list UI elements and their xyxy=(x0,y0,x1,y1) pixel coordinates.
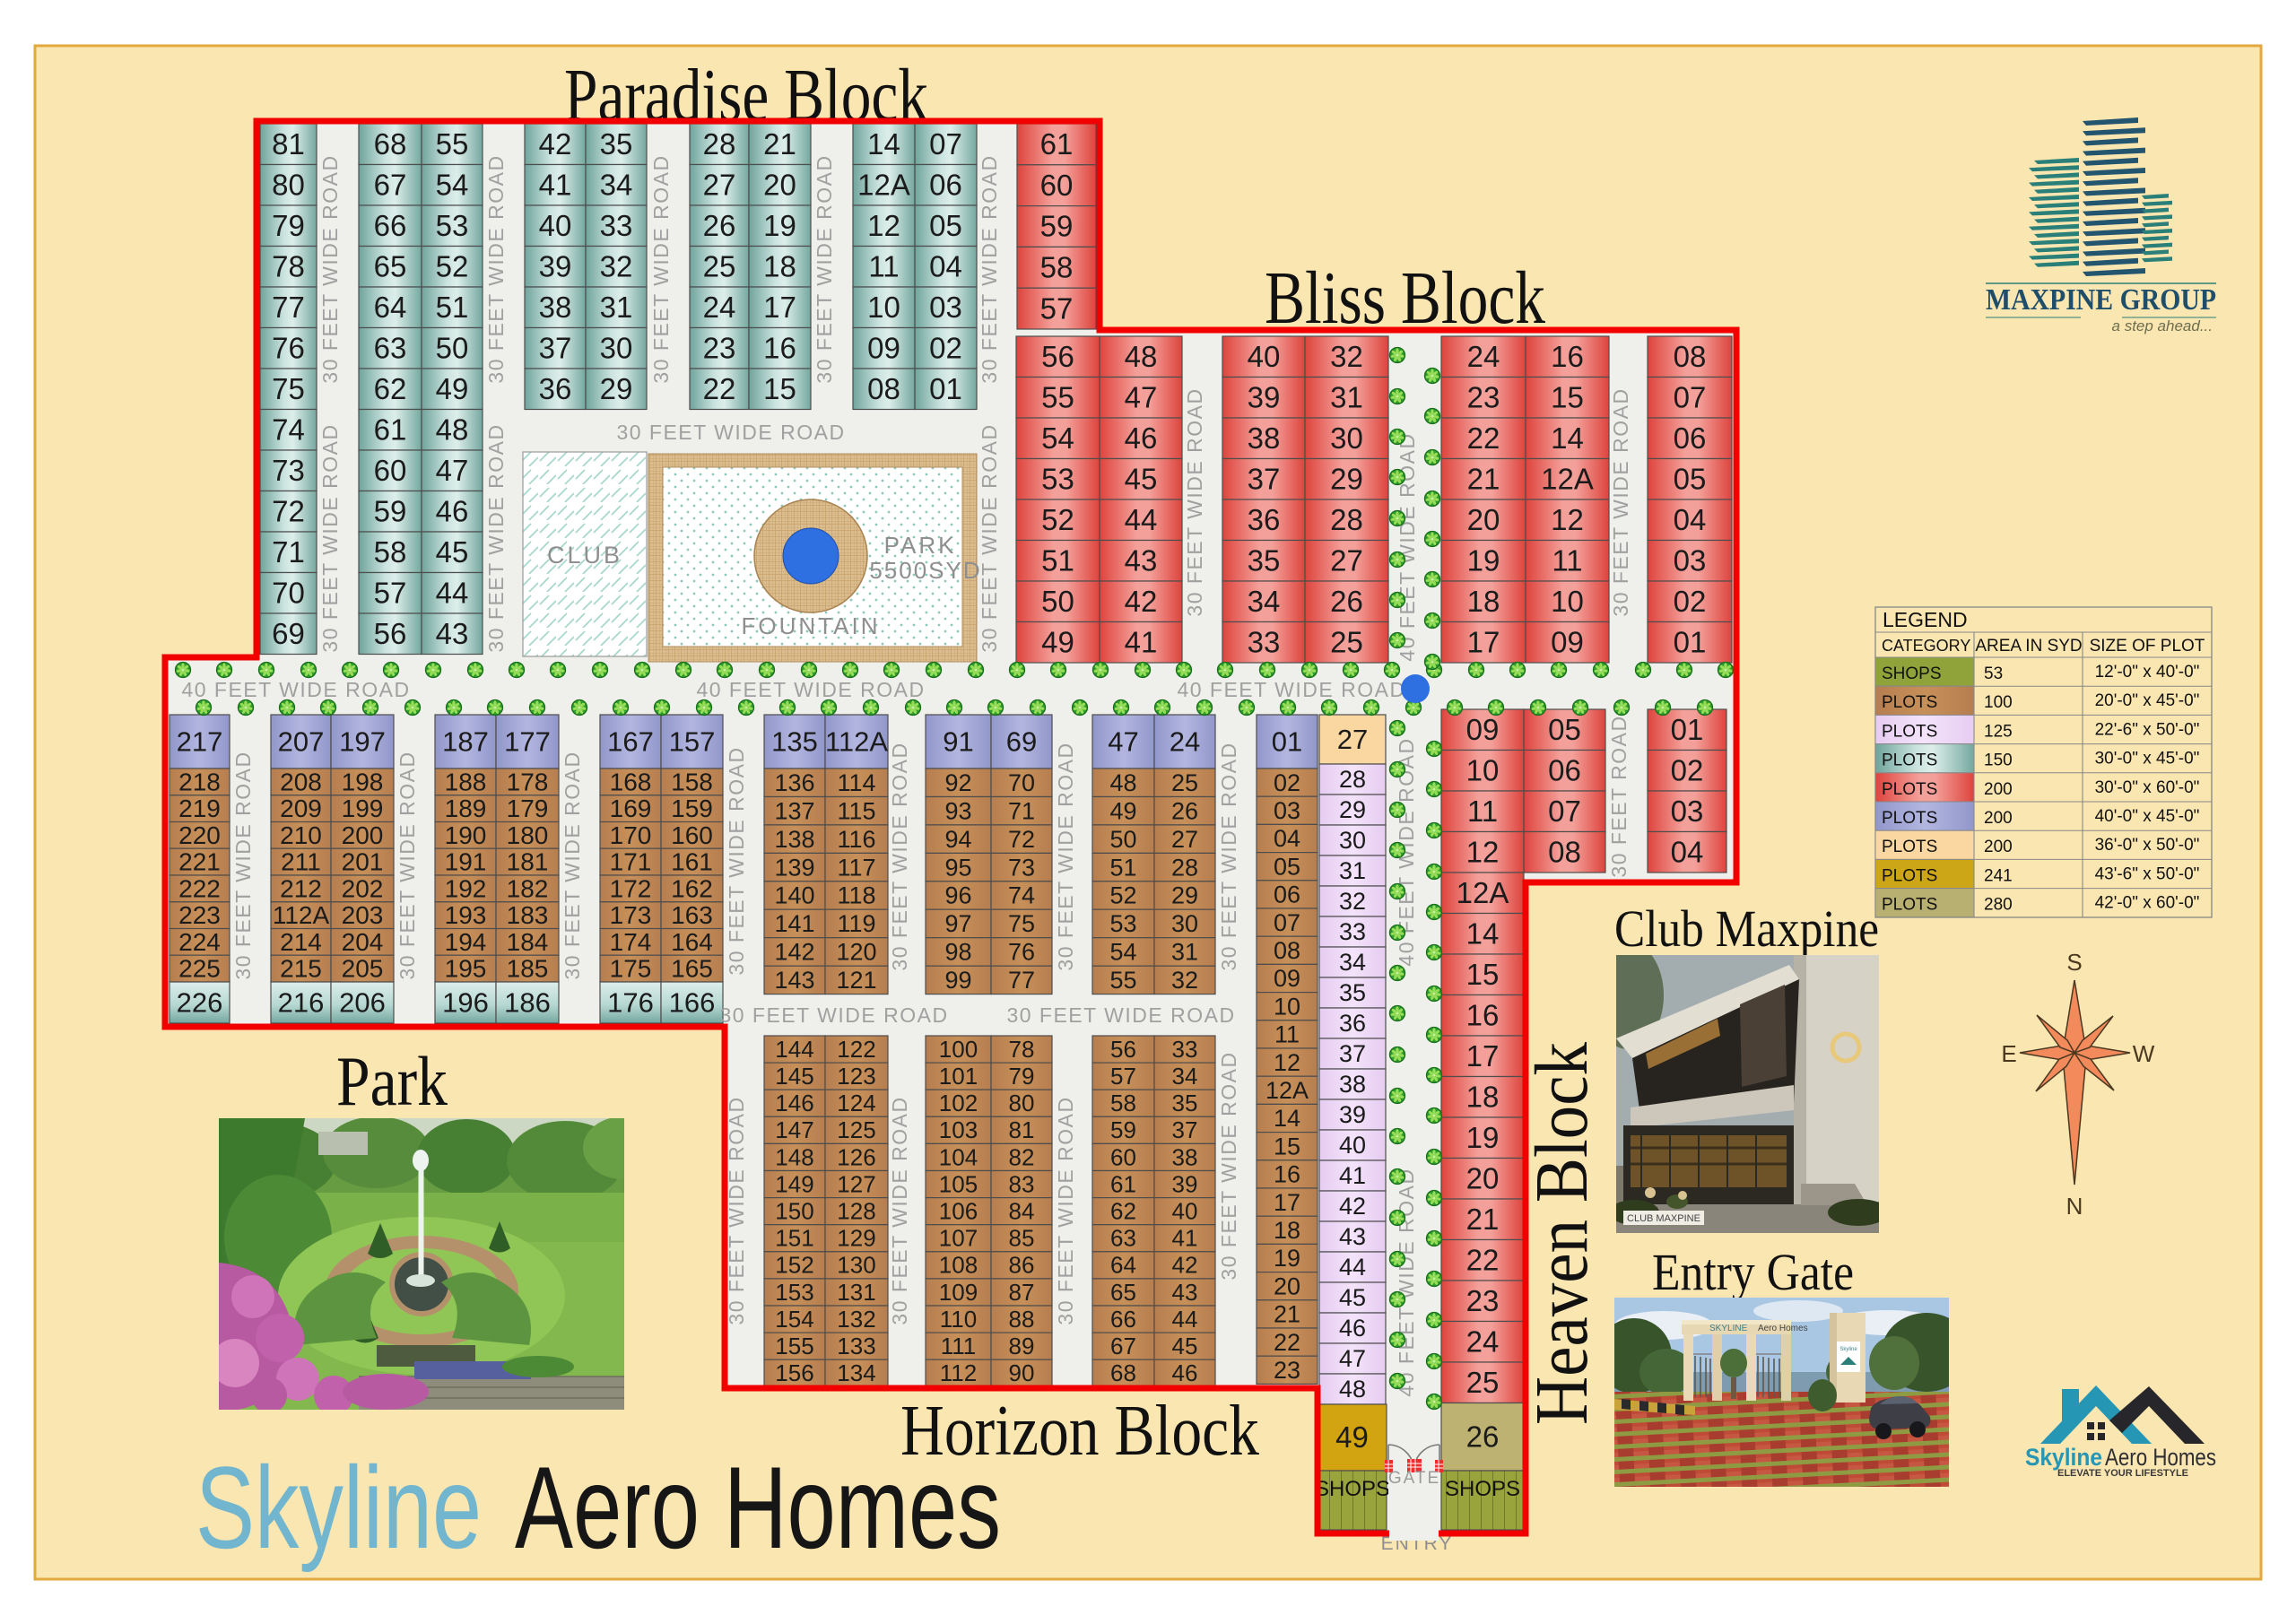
svg-text:20: 20 xyxy=(1466,1162,1500,1195)
svg-text:12: 12 xyxy=(867,209,900,242)
svg-text:124: 124 xyxy=(837,1090,875,1116)
svg-text:48: 48 xyxy=(1339,1376,1366,1403)
svg-text:185: 185 xyxy=(507,955,549,983)
svg-text:44: 44 xyxy=(1172,1306,1198,1333)
svg-text:34: 34 xyxy=(1339,949,1366,976)
svg-text:103: 103 xyxy=(939,1116,978,1143)
svg-text:01: 01 xyxy=(1674,626,1707,659)
svg-text:14: 14 xyxy=(1551,421,1584,455)
svg-text:46: 46 xyxy=(1125,421,1158,455)
svg-text:23: 23 xyxy=(1467,381,1500,414)
svg-text:51: 51 xyxy=(1041,544,1074,578)
svg-text:195: 195 xyxy=(445,955,487,983)
svg-text:60: 60 xyxy=(1040,169,1074,202)
svg-text:96: 96 xyxy=(944,882,971,909)
svg-text:153: 153 xyxy=(775,1279,813,1306)
svg-text:121: 121 xyxy=(836,967,876,994)
svg-text:59: 59 xyxy=(1110,1116,1136,1143)
svg-text:SHOPS: SHOPS xyxy=(1315,1477,1390,1501)
svg-text:05: 05 xyxy=(1548,713,1581,746)
svg-text:12: 12 xyxy=(1466,836,1500,869)
svg-text:66: 66 xyxy=(374,209,407,242)
svg-text:28: 28 xyxy=(1330,503,1363,536)
svg-text:38: 38 xyxy=(1339,1071,1366,1098)
svg-text:30 FEET WIDE ROAD: 30 FEET WIDE ROAD xyxy=(649,154,673,383)
svg-text:40: 40 xyxy=(1172,1198,1198,1225)
svg-text:58: 58 xyxy=(374,535,407,569)
svg-text:200: 200 xyxy=(342,821,384,849)
svg-text:108: 108 xyxy=(939,1252,978,1279)
svg-text:59: 59 xyxy=(374,495,407,528)
svg-text:Entry Gate: Entry Gate xyxy=(1652,1243,1854,1301)
svg-text:40 FEET WIDE ROAD: 40 FEET WIDE ROAD xyxy=(1177,678,1405,701)
svg-text:34: 34 xyxy=(600,169,633,202)
svg-text:83: 83 xyxy=(1009,1170,1035,1197)
svg-text:80: 80 xyxy=(1009,1090,1035,1116)
svg-text:54: 54 xyxy=(1109,939,1136,966)
svg-text:181: 181 xyxy=(507,848,549,876)
svg-text:30 FEET ROAD: 30 FEET ROAD xyxy=(1607,715,1631,877)
svg-text:143: 143 xyxy=(774,967,814,994)
svg-text:35: 35 xyxy=(1339,979,1366,1006)
svg-text:201: 201 xyxy=(342,848,384,876)
svg-text:58: 58 xyxy=(1040,251,1074,284)
svg-text:73: 73 xyxy=(1008,854,1035,881)
svg-text:49: 49 xyxy=(1109,797,1136,824)
svg-text:57: 57 xyxy=(1040,291,1074,325)
svg-text:29: 29 xyxy=(600,372,633,405)
svg-text:44: 44 xyxy=(1339,1254,1366,1281)
svg-text:150: 150 xyxy=(775,1198,813,1225)
svg-text:30 FEET WIDE ROAD: 30 FEET WIDE ROAD xyxy=(888,1096,911,1324)
svg-text:30 FEET WIDE ROAD: 30 FEET WIDE ROAD xyxy=(318,423,342,652)
svg-text:40: 40 xyxy=(1248,340,1281,373)
svg-text:CLUB MAXPINE: CLUB MAXPINE xyxy=(1627,1213,1700,1224)
svg-text:117: 117 xyxy=(837,854,875,881)
svg-text:76: 76 xyxy=(1008,939,1035,966)
svg-text:39: 39 xyxy=(1339,1101,1366,1128)
svg-text:47: 47 xyxy=(1108,726,1138,758)
svg-text:30 FEET WIDE ROAD: 30 FEET WIDE ROAD xyxy=(725,1096,748,1324)
svg-text:14: 14 xyxy=(1274,1105,1300,1132)
svg-text:30 FEET WIDE ROAD: 30 FEET WIDE ROAD xyxy=(725,746,748,975)
svg-text:127: 127 xyxy=(837,1170,875,1197)
svg-text:18: 18 xyxy=(1467,585,1500,618)
svg-text:33: 33 xyxy=(600,209,633,242)
svg-text:216: 216 xyxy=(278,987,325,1019)
svg-text:26: 26 xyxy=(1171,797,1198,824)
svg-text:03: 03 xyxy=(929,291,962,324)
svg-text:79: 79 xyxy=(272,209,305,242)
svg-text:27: 27 xyxy=(1171,826,1198,853)
svg-text:09: 09 xyxy=(1466,713,1500,746)
svg-text:203: 203 xyxy=(342,901,384,929)
svg-text:221: 221 xyxy=(178,848,221,876)
svg-text:22: 22 xyxy=(1466,1244,1500,1277)
svg-text:125: 125 xyxy=(837,1116,875,1143)
svg-text:100: 100 xyxy=(939,1036,978,1063)
svg-text:56: 56 xyxy=(1110,1036,1136,1063)
svg-text:SIZE OF PLOT: SIZE OF PLOT xyxy=(2090,637,2205,656)
svg-text:105: 105 xyxy=(939,1170,978,1197)
svg-text:14: 14 xyxy=(1466,917,1500,951)
svg-text:CATEGORY: CATEGORY xyxy=(1882,637,1970,655)
svg-text:114: 114 xyxy=(837,769,875,796)
svg-text:175: 175 xyxy=(610,955,652,983)
svg-text:16: 16 xyxy=(1466,999,1500,1032)
svg-text:04: 04 xyxy=(1274,825,1300,852)
svg-text:109: 109 xyxy=(939,1279,978,1306)
svg-text:40 FEET WIDE ROAD: 40 FEET WIDE ROAD xyxy=(1395,1168,1418,1396)
svg-text:PLOTS: PLOTS xyxy=(1882,722,1937,741)
svg-text:29: 29 xyxy=(1171,882,1198,909)
svg-text:37: 37 xyxy=(539,332,572,365)
svg-text:06: 06 xyxy=(929,169,962,202)
svg-text:03: 03 xyxy=(1274,797,1300,824)
svg-text:22: 22 xyxy=(703,372,736,405)
svg-text:123: 123 xyxy=(837,1063,875,1090)
svg-text:189: 189 xyxy=(445,795,487,822)
svg-text:177: 177 xyxy=(504,726,551,758)
svg-text:220: 220 xyxy=(178,821,221,849)
svg-text:30: 30 xyxy=(1171,910,1198,937)
svg-text:02: 02 xyxy=(929,332,962,365)
svg-text:82: 82 xyxy=(1009,1143,1035,1170)
svg-text:40: 40 xyxy=(1339,1132,1366,1159)
svg-text:30 FEET WIDE ROAD: 30 FEET WIDE ROAD xyxy=(888,742,911,970)
svg-text:192: 192 xyxy=(445,874,487,902)
svg-text:81: 81 xyxy=(1009,1116,1035,1143)
svg-text:11: 11 xyxy=(1274,1021,1300,1048)
svg-text:35: 35 xyxy=(1172,1090,1198,1116)
svg-text:26: 26 xyxy=(1330,585,1363,618)
svg-text:PLOTS: PLOTS xyxy=(1882,780,1937,799)
svg-text:52: 52 xyxy=(436,250,469,283)
svg-text:142: 142 xyxy=(774,939,814,966)
svg-text:19: 19 xyxy=(763,209,796,242)
svg-text:Park: Park xyxy=(336,1042,448,1120)
svg-text:30 FEET WIDE ROAD: 30 FEET WIDE ROAD xyxy=(719,1003,948,1027)
svg-text:222: 222 xyxy=(178,874,221,902)
svg-text:205: 205 xyxy=(342,955,384,983)
svg-text:39: 39 xyxy=(539,250,572,283)
svg-text:27: 27 xyxy=(703,169,736,202)
svg-text:88: 88 xyxy=(1009,1306,1035,1333)
svg-text:31: 31 xyxy=(1339,857,1366,884)
svg-text:122: 122 xyxy=(837,1036,875,1063)
svg-text:31: 31 xyxy=(1330,381,1363,414)
svg-text:139: 139 xyxy=(774,854,814,881)
svg-text:17: 17 xyxy=(763,291,796,324)
svg-text:45: 45 xyxy=(436,535,469,569)
svg-text:92: 92 xyxy=(944,769,971,796)
svg-text:99: 99 xyxy=(944,967,971,994)
svg-text:165: 165 xyxy=(671,955,713,983)
svg-text:Aero Homes: Aero Homes xyxy=(2105,1444,2216,1471)
svg-text:07: 07 xyxy=(929,127,962,161)
svg-text:64: 64 xyxy=(374,291,407,324)
svg-text:15: 15 xyxy=(1274,1133,1300,1159)
svg-text:40 FEET WIDE ROAD: 40 FEET WIDE ROAD xyxy=(696,678,925,701)
svg-text:Aero Homes: Aero Homes xyxy=(515,1442,1001,1573)
svg-text:55: 55 xyxy=(1109,967,1136,994)
svg-text:30 FEET WIDE ROAD: 30 FEET WIDE ROAD xyxy=(1609,387,1632,616)
svg-text:217: 217 xyxy=(177,726,223,758)
svg-text:90: 90 xyxy=(1009,1359,1035,1386)
svg-text:CLUB: CLUB xyxy=(547,542,622,569)
svg-text:50: 50 xyxy=(1109,826,1136,853)
svg-text:176: 176 xyxy=(607,987,654,1019)
svg-text:17: 17 xyxy=(1467,626,1500,659)
svg-text:28: 28 xyxy=(1171,854,1198,881)
svg-text:68: 68 xyxy=(374,127,407,161)
svg-text:129: 129 xyxy=(837,1225,875,1252)
svg-text:280: 280 xyxy=(1984,896,2013,915)
svg-text:73: 73 xyxy=(272,454,305,487)
svg-text:PLOTS: PLOTS xyxy=(1882,751,1937,770)
svg-text:02: 02 xyxy=(1274,769,1300,796)
svg-text:37: 37 xyxy=(1339,1040,1366,1067)
svg-text:39: 39 xyxy=(1248,381,1281,414)
svg-text:146: 146 xyxy=(775,1090,813,1116)
svg-text:21: 21 xyxy=(1274,1301,1300,1328)
svg-text:126: 126 xyxy=(837,1143,875,1170)
svg-text:67: 67 xyxy=(374,169,407,202)
svg-text:30 FEET WIDE ROAD: 30 FEET WIDE ROAD xyxy=(1183,387,1206,616)
svg-text:49: 49 xyxy=(1335,1420,1369,1454)
svg-text:03: 03 xyxy=(1674,544,1707,578)
svg-text:28: 28 xyxy=(703,127,736,161)
svg-text:14: 14 xyxy=(867,127,900,161)
svg-text:164: 164 xyxy=(671,928,713,956)
svg-text:33: 33 xyxy=(1172,1036,1198,1063)
svg-text:30: 30 xyxy=(1339,827,1366,854)
svg-text:61: 61 xyxy=(1040,127,1074,161)
svg-text:07: 07 xyxy=(1548,795,1581,828)
svg-text:40'-0" x 45'-0": 40'-0" x 45'-0" xyxy=(2095,807,2200,826)
svg-text:05: 05 xyxy=(1674,463,1707,496)
svg-text:198: 198 xyxy=(342,768,384,795)
svg-text:24: 24 xyxy=(1466,1325,1500,1359)
svg-text:214: 214 xyxy=(280,928,322,956)
svg-text:66: 66 xyxy=(1110,1306,1136,1333)
svg-text:39: 39 xyxy=(1172,1170,1198,1197)
svg-text:104: 104 xyxy=(939,1143,978,1170)
svg-text:12A: 12A xyxy=(1265,1077,1309,1104)
svg-text:21: 21 xyxy=(763,127,796,161)
svg-text:172: 172 xyxy=(610,874,652,902)
svg-text:Skyline: Skyline xyxy=(1839,1347,1857,1352)
svg-text:78: 78 xyxy=(1009,1036,1035,1063)
svg-text:149: 149 xyxy=(775,1170,813,1197)
svg-text:53: 53 xyxy=(436,209,469,242)
svg-text:44: 44 xyxy=(436,577,469,610)
svg-text:219: 219 xyxy=(178,795,221,822)
svg-text:226: 226 xyxy=(177,987,223,1019)
svg-text:53: 53 xyxy=(1984,664,2003,683)
svg-text:183: 183 xyxy=(507,901,549,929)
svg-text:65: 65 xyxy=(374,250,407,283)
svg-text:94: 94 xyxy=(944,826,971,853)
svg-text:Club Maxpine: Club Maxpine xyxy=(1614,899,1879,958)
svg-text:43: 43 xyxy=(1172,1279,1198,1306)
svg-text:16: 16 xyxy=(763,332,796,365)
svg-text:W: W xyxy=(2133,1040,2155,1067)
svg-text:160: 160 xyxy=(671,821,713,849)
svg-text:167: 167 xyxy=(607,726,654,758)
svg-text:30 FEET WIDE ROAD: 30 FEET WIDE ROAD xyxy=(978,423,1001,652)
svg-text:PLOTS: PLOTS xyxy=(1882,693,1937,712)
svg-text:24: 24 xyxy=(1467,340,1500,373)
svg-text:100: 100 xyxy=(1984,693,2013,712)
svg-text:12A: 12A xyxy=(1457,876,1509,909)
svg-text:157: 157 xyxy=(669,726,716,758)
svg-text:210: 210 xyxy=(280,821,322,849)
svg-text:170: 170 xyxy=(610,821,652,849)
svg-text:12: 12 xyxy=(1551,503,1584,536)
svg-text:65: 65 xyxy=(1110,1279,1136,1306)
svg-text:11: 11 xyxy=(1467,795,1498,828)
svg-text:30'-0" x 60'-0": 30'-0" x 60'-0" xyxy=(2095,778,2200,797)
svg-text:169: 169 xyxy=(610,795,652,822)
svg-text:12: 12 xyxy=(1274,1049,1300,1076)
svg-text:45: 45 xyxy=(1125,463,1158,496)
svg-text:22: 22 xyxy=(1274,1329,1300,1356)
svg-text:19: 19 xyxy=(1274,1245,1300,1272)
svg-text:69: 69 xyxy=(1006,726,1037,758)
svg-text:10: 10 xyxy=(1274,993,1300,1020)
svg-text:44: 44 xyxy=(1125,503,1158,536)
svg-text:26: 26 xyxy=(1466,1420,1500,1454)
svg-text:218: 218 xyxy=(178,768,221,795)
svg-text:186: 186 xyxy=(504,987,551,1019)
svg-text:52: 52 xyxy=(1041,503,1074,536)
svg-text:53: 53 xyxy=(1109,910,1136,937)
svg-text:32: 32 xyxy=(600,250,633,283)
svg-text:16: 16 xyxy=(1274,1161,1300,1188)
svg-text:38: 38 xyxy=(539,291,572,324)
svg-text:30: 30 xyxy=(1330,421,1363,455)
svg-text:SKYLINE: SKYLINE xyxy=(1709,1324,1748,1333)
svg-text:10: 10 xyxy=(867,291,900,324)
svg-text:31: 31 xyxy=(1171,939,1198,966)
svg-text:102: 102 xyxy=(939,1090,978,1116)
svg-text:09: 09 xyxy=(867,332,900,365)
svg-text:72: 72 xyxy=(1008,826,1035,853)
svg-text:43'-6" x 50'-0": 43'-6" x 50'-0" xyxy=(2095,864,2200,883)
svg-text:148: 148 xyxy=(775,1143,813,1170)
svg-text:a step ahead...: a step ahead... xyxy=(2112,317,2213,334)
svg-text:208: 208 xyxy=(280,768,322,795)
svg-text:49: 49 xyxy=(436,372,469,405)
svg-text:200: 200 xyxy=(1984,780,2013,799)
svg-text:107: 107 xyxy=(939,1225,978,1252)
svg-text:11: 11 xyxy=(1552,544,1582,578)
svg-text:21: 21 xyxy=(1467,463,1500,496)
svg-text:E: E xyxy=(2001,1040,2016,1067)
svg-text:85: 85 xyxy=(1009,1225,1035,1252)
svg-text:42: 42 xyxy=(1125,585,1158,618)
svg-text:135: 135 xyxy=(771,726,818,758)
svg-text:115: 115 xyxy=(837,797,875,824)
svg-text:47: 47 xyxy=(1339,1345,1366,1372)
svg-text:95: 95 xyxy=(944,854,971,881)
svg-text:42'-0" x 60'-0": 42'-0" x 60'-0" xyxy=(2095,894,2200,913)
svg-text:06: 06 xyxy=(1548,754,1581,787)
svg-text:204: 204 xyxy=(342,928,384,956)
svg-text:PLOTS: PLOTS xyxy=(1882,866,1937,885)
svg-text:118: 118 xyxy=(837,882,875,909)
svg-text:18: 18 xyxy=(1466,1081,1500,1114)
svg-text:159: 159 xyxy=(671,795,713,822)
svg-text:31: 31 xyxy=(600,291,633,324)
svg-text:32: 32 xyxy=(1171,967,1198,994)
svg-text:158: 158 xyxy=(671,768,713,795)
svg-text:98: 98 xyxy=(944,939,971,966)
svg-text:134: 134 xyxy=(837,1359,875,1386)
svg-text:206: 206 xyxy=(339,987,386,1019)
svg-text:151: 151 xyxy=(775,1225,813,1252)
svg-text:241: 241 xyxy=(1984,866,2013,885)
svg-text:36: 36 xyxy=(1339,1010,1366,1037)
svg-text:63: 63 xyxy=(1110,1225,1136,1252)
svg-text:07: 07 xyxy=(1674,381,1707,414)
svg-text:15: 15 xyxy=(1551,381,1584,414)
svg-text:112: 112 xyxy=(940,1359,977,1386)
svg-text:5500SYD: 5500SYD xyxy=(869,557,981,584)
svg-text:43: 43 xyxy=(1339,1223,1366,1250)
svg-text:211: 211 xyxy=(281,848,321,876)
svg-text:72: 72 xyxy=(272,495,305,528)
svg-text:199: 199 xyxy=(342,795,384,822)
svg-text:74: 74 xyxy=(1008,882,1035,909)
svg-text:30 FEET WIDE ROAD: 30 FEET WIDE ROAD xyxy=(813,154,836,383)
svg-text:45: 45 xyxy=(1339,1284,1366,1311)
svg-text:30 FEET WIDE ROAD: 30 FEET WIDE ROAD xyxy=(1006,1003,1235,1027)
svg-text:37: 37 xyxy=(1248,463,1281,496)
svg-text:19: 19 xyxy=(1467,544,1500,578)
svg-text:70: 70 xyxy=(272,577,305,610)
svg-text:46: 46 xyxy=(1339,1315,1366,1342)
svg-text:171: 171 xyxy=(610,848,652,876)
svg-text:32: 32 xyxy=(1330,340,1363,373)
svg-text:119: 119 xyxy=(837,910,875,937)
svg-text:37: 37 xyxy=(1172,1116,1198,1143)
svg-text:67: 67 xyxy=(1110,1333,1136,1359)
svg-text:Skyline: Skyline xyxy=(196,1442,482,1573)
svg-text:25: 25 xyxy=(1330,626,1363,659)
svg-text:145: 145 xyxy=(775,1063,813,1090)
svg-text:42: 42 xyxy=(1172,1252,1198,1279)
svg-text:173: 173 xyxy=(610,901,652,929)
svg-text:20'-0" x 45'-0": 20'-0" x 45'-0" xyxy=(2095,691,2200,710)
svg-text:168: 168 xyxy=(610,768,652,795)
svg-text:PARK: PARK xyxy=(884,532,957,559)
svg-text:190: 190 xyxy=(445,821,487,849)
svg-text:86: 86 xyxy=(1009,1252,1035,1279)
svg-text:54: 54 xyxy=(1041,421,1074,455)
svg-text:04: 04 xyxy=(929,250,962,283)
svg-text:106: 106 xyxy=(939,1198,978,1225)
svg-text:60: 60 xyxy=(374,454,407,487)
svg-text:FOUNTAIN: FOUNTAIN xyxy=(742,612,881,639)
svg-text:174: 174 xyxy=(610,928,652,956)
svg-text:01: 01 xyxy=(929,372,962,405)
svg-text:29: 29 xyxy=(1330,463,1363,496)
svg-text:22: 22 xyxy=(1467,421,1500,455)
svg-text:38: 38 xyxy=(1248,421,1281,455)
svg-text:49: 49 xyxy=(1041,626,1074,659)
